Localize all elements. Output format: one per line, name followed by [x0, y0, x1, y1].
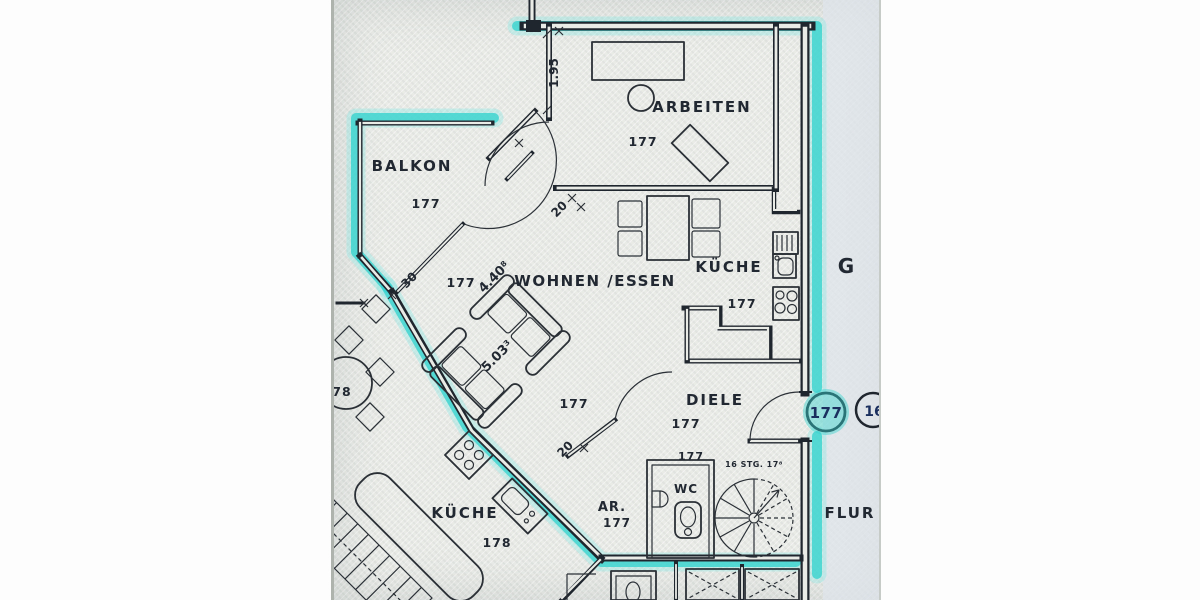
room-label-kueche-178: KÜCHE	[431, 503, 498, 522]
room-number-kueche-178: 178	[482, 535, 511, 550]
dimension-20-lower: 20	[554, 438, 576, 460]
room-label-arbeiten: ARBEITEN	[652, 98, 751, 116]
furniture-178	[334, 295, 548, 600]
side-table-icon	[672, 125, 729, 182]
balcony-door-arc	[464, 111, 556, 229]
hand-basin-icon	[652, 491, 668, 507]
staircase-icon	[334, 492, 432, 600]
room-number-neighbor-partial: 78	[334, 384, 352, 399]
toilet-icon	[675, 502, 701, 538]
dimension-20-top: 20	[548, 198, 570, 220]
room-number-kueche-177: 177	[727, 296, 756, 311]
room-label-kueche-177: KÜCHE	[695, 257, 762, 276]
desk-chair-icon	[628, 85, 654, 111]
room-number-balkon: 177	[411, 196, 440, 211]
corridor-label: FLUR	[824, 504, 875, 522]
floorplan-photo: BALKON 177 ARBEITEN 177 WOHNEN /ESSEN 17…	[331, 0, 881, 600]
room-number-abstellraum: 177	[603, 516, 631, 530]
room-number-diele: 177	[671, 416, 700, 431]
dimension-marks	[360, 27, 588, 452]
round-table-icon	[334, 357, 372, 409]
chair-icon	[356, 403, 384, 431]
room-label-wohnen-essen: WOHNEN /ESSEN	[514, 272, 675, 290]
unit-badge-number-partial: 16	[864, 404, 879, 420]
dimension-1-95: 1.95	[547, 58, 561, 88]
unit-badge-number: 177	[810, 404, 843, 422]
room-label-balkon: BALKON	[372, 157, 453, 175]
counter-icon	[348, 466, 491, 600]
room-number-arbeiten: 177	[628, 134, 657, 149]
spiral-staircase-icon	[715, 479, 793, 557]
grid-letter: G	[838, 254, 854, 278]
stove-icon	[773, 287, 799, 320]
stairs-note: 16 STG. 17⁸	[725, 460, 783, 469]
kitchen-sink-icon	[773, 232, 798, 278]
diele-door-arc	[568, 372, 672, 456]
dining-set-icon	[618, 196, 720, 260]
floorplan-screenshot: BALKON 177 ARBEITEN 177 WOHNEN /ESSEN 17…	[0, 0, 1200, 600]
dimension-5-03: 5.03³	[479, 338, 516, 375]
chair-icon	[335, 326, 363, 354]
room-number-wohnen-left: 177	[446, 275, 475, 290]
room-number-wohnen-center: 177	[559, 396, 588, 411]
room-label-abstellraum: AR.	[598, 500, 626, 515]
toilet-icon	[626, 582, 640, 600]
wc-room	[647, 460, 714, 558]
room-label-wc: WC	[674, 482, 698, 496]
floorplan-drawing: BALKON 177 ARBEITEN 177 WOHNEN /ESSEN 17…	[334, 0, 879, 600]
desk-icon	[592, 42, 684, 80]
lower-rooms	[567, 569, 799, 600]
entrance-door-arc	[750, 392, 799, 441]
room-label-diele: DIELE	[686, 391, 744, 409]
room-number-wc: 177	[678, 450, 704, 463]
